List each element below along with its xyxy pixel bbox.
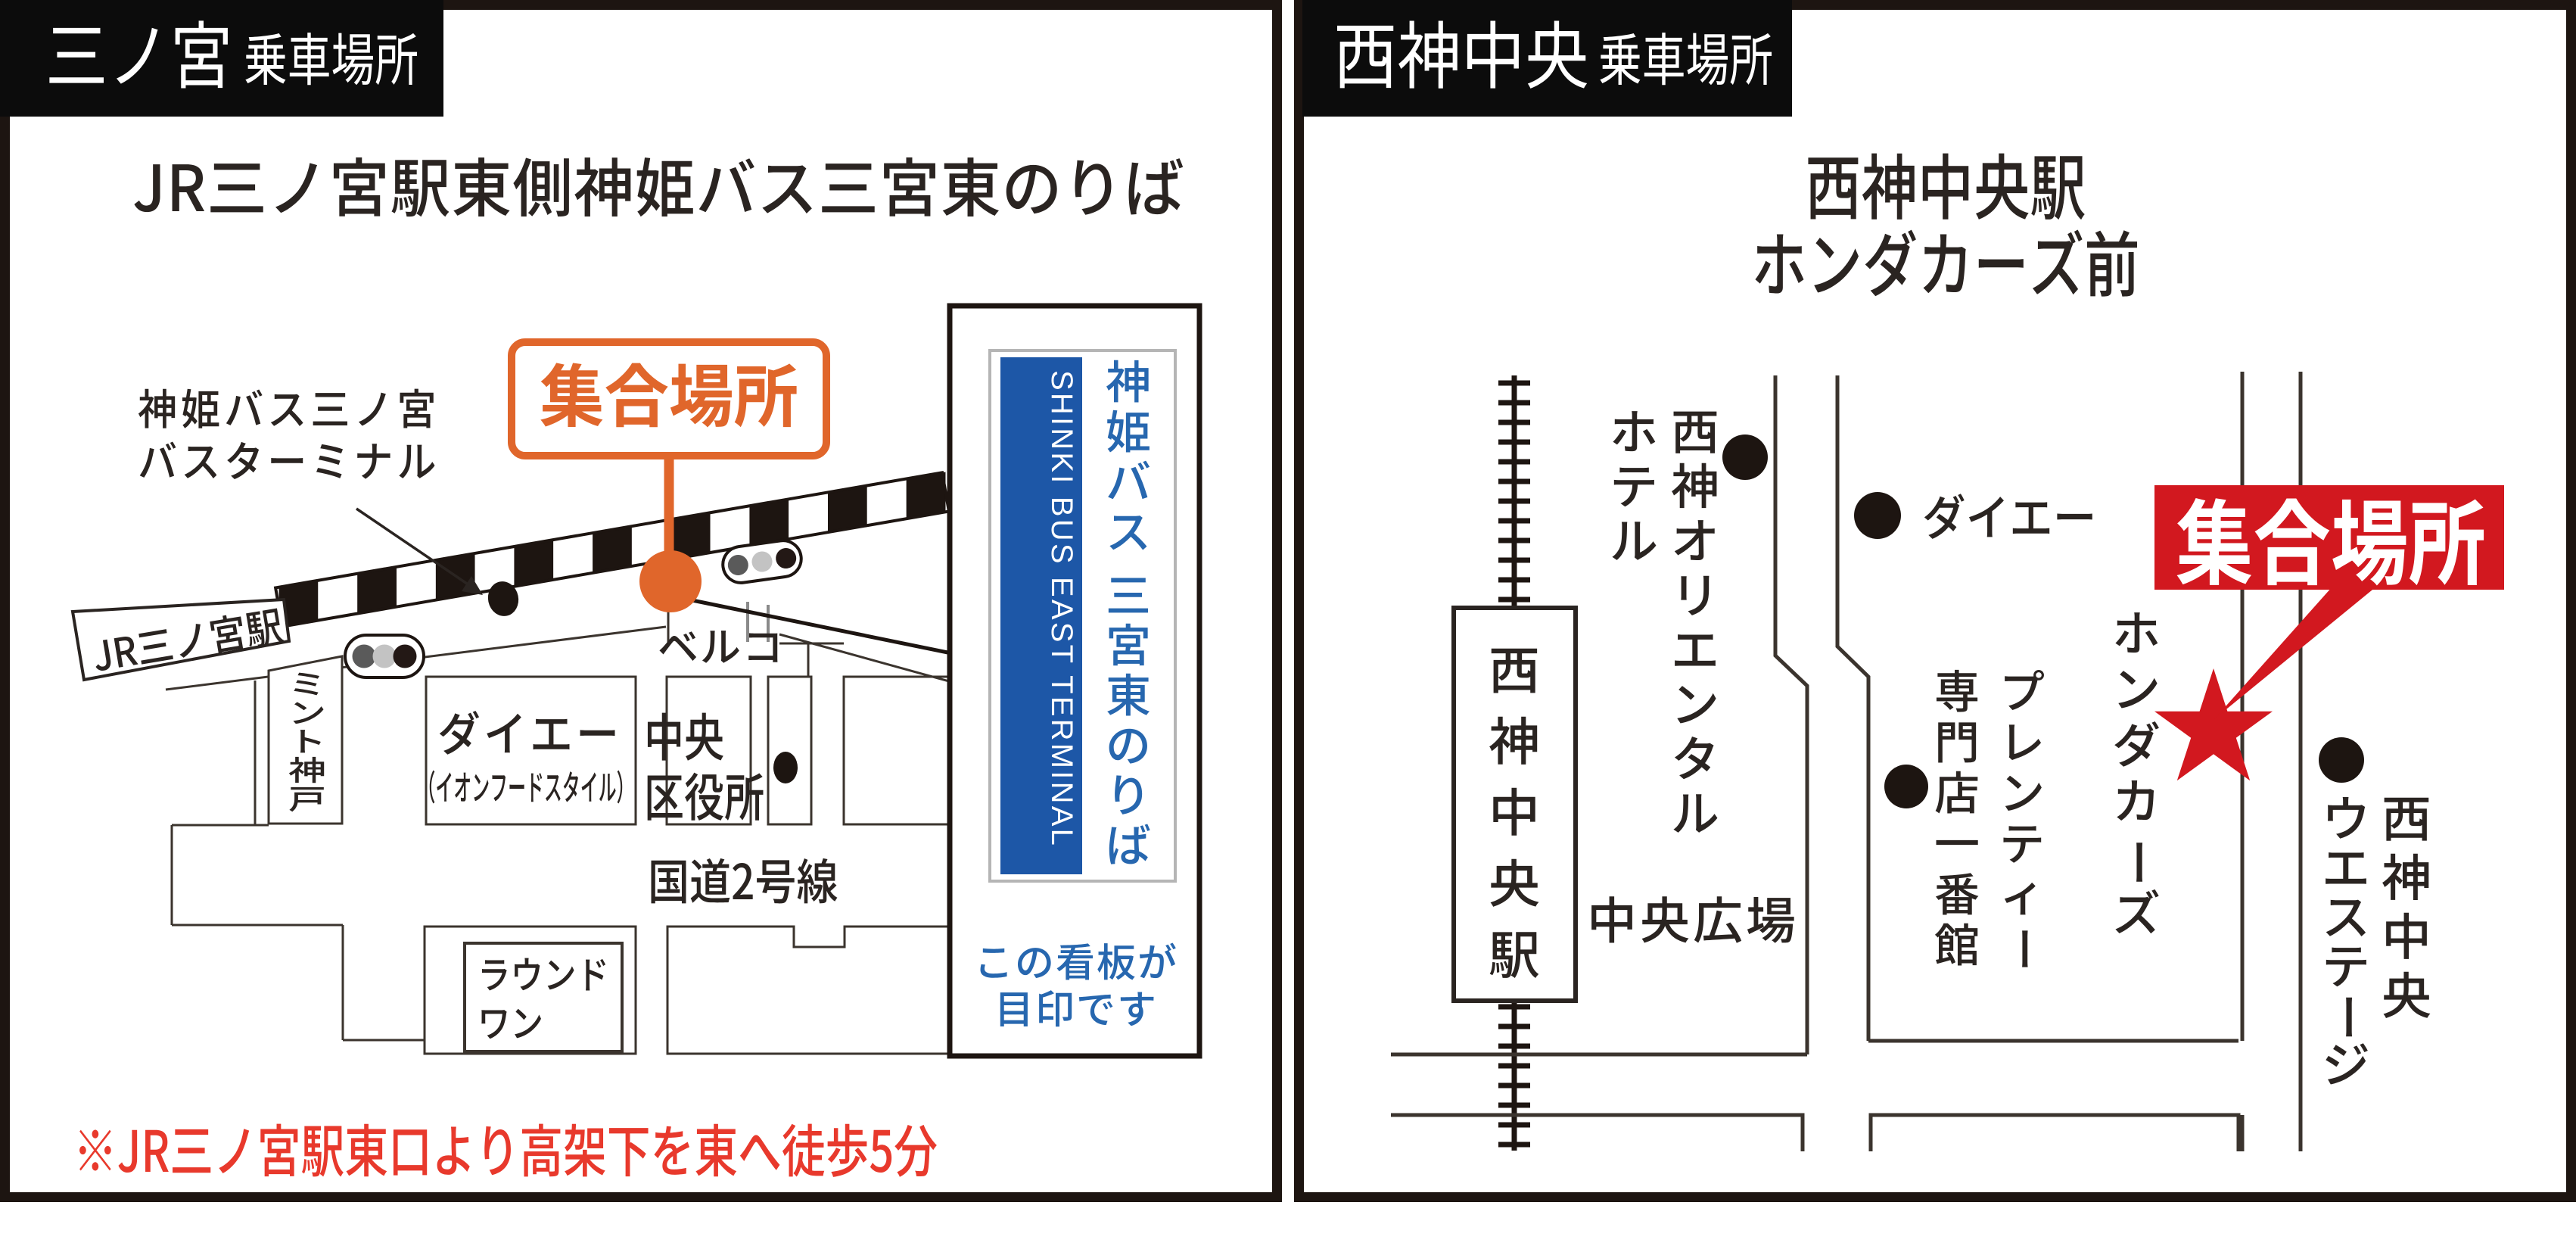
- svg-text:SHINKI BUS EAST TERMINAL: SHINKI BUS EAST TERMINAL: [1045, 370, 1078, 848]
